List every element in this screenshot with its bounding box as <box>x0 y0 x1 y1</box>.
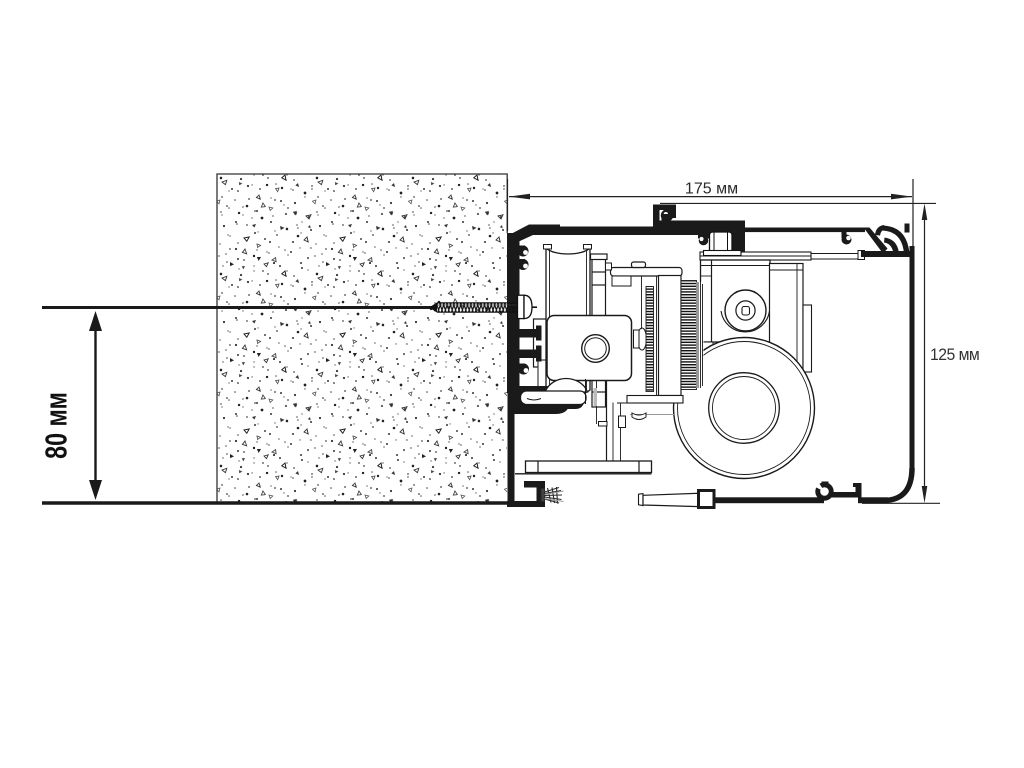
svg-text:125 мм: 125 мм <box>930 346 979 365</box>
svg-text:80 мм: 80 мм <box>38 392 73 459</box>
svg-text:175 мм: 175 мм <box>685 181 738 198</box>
